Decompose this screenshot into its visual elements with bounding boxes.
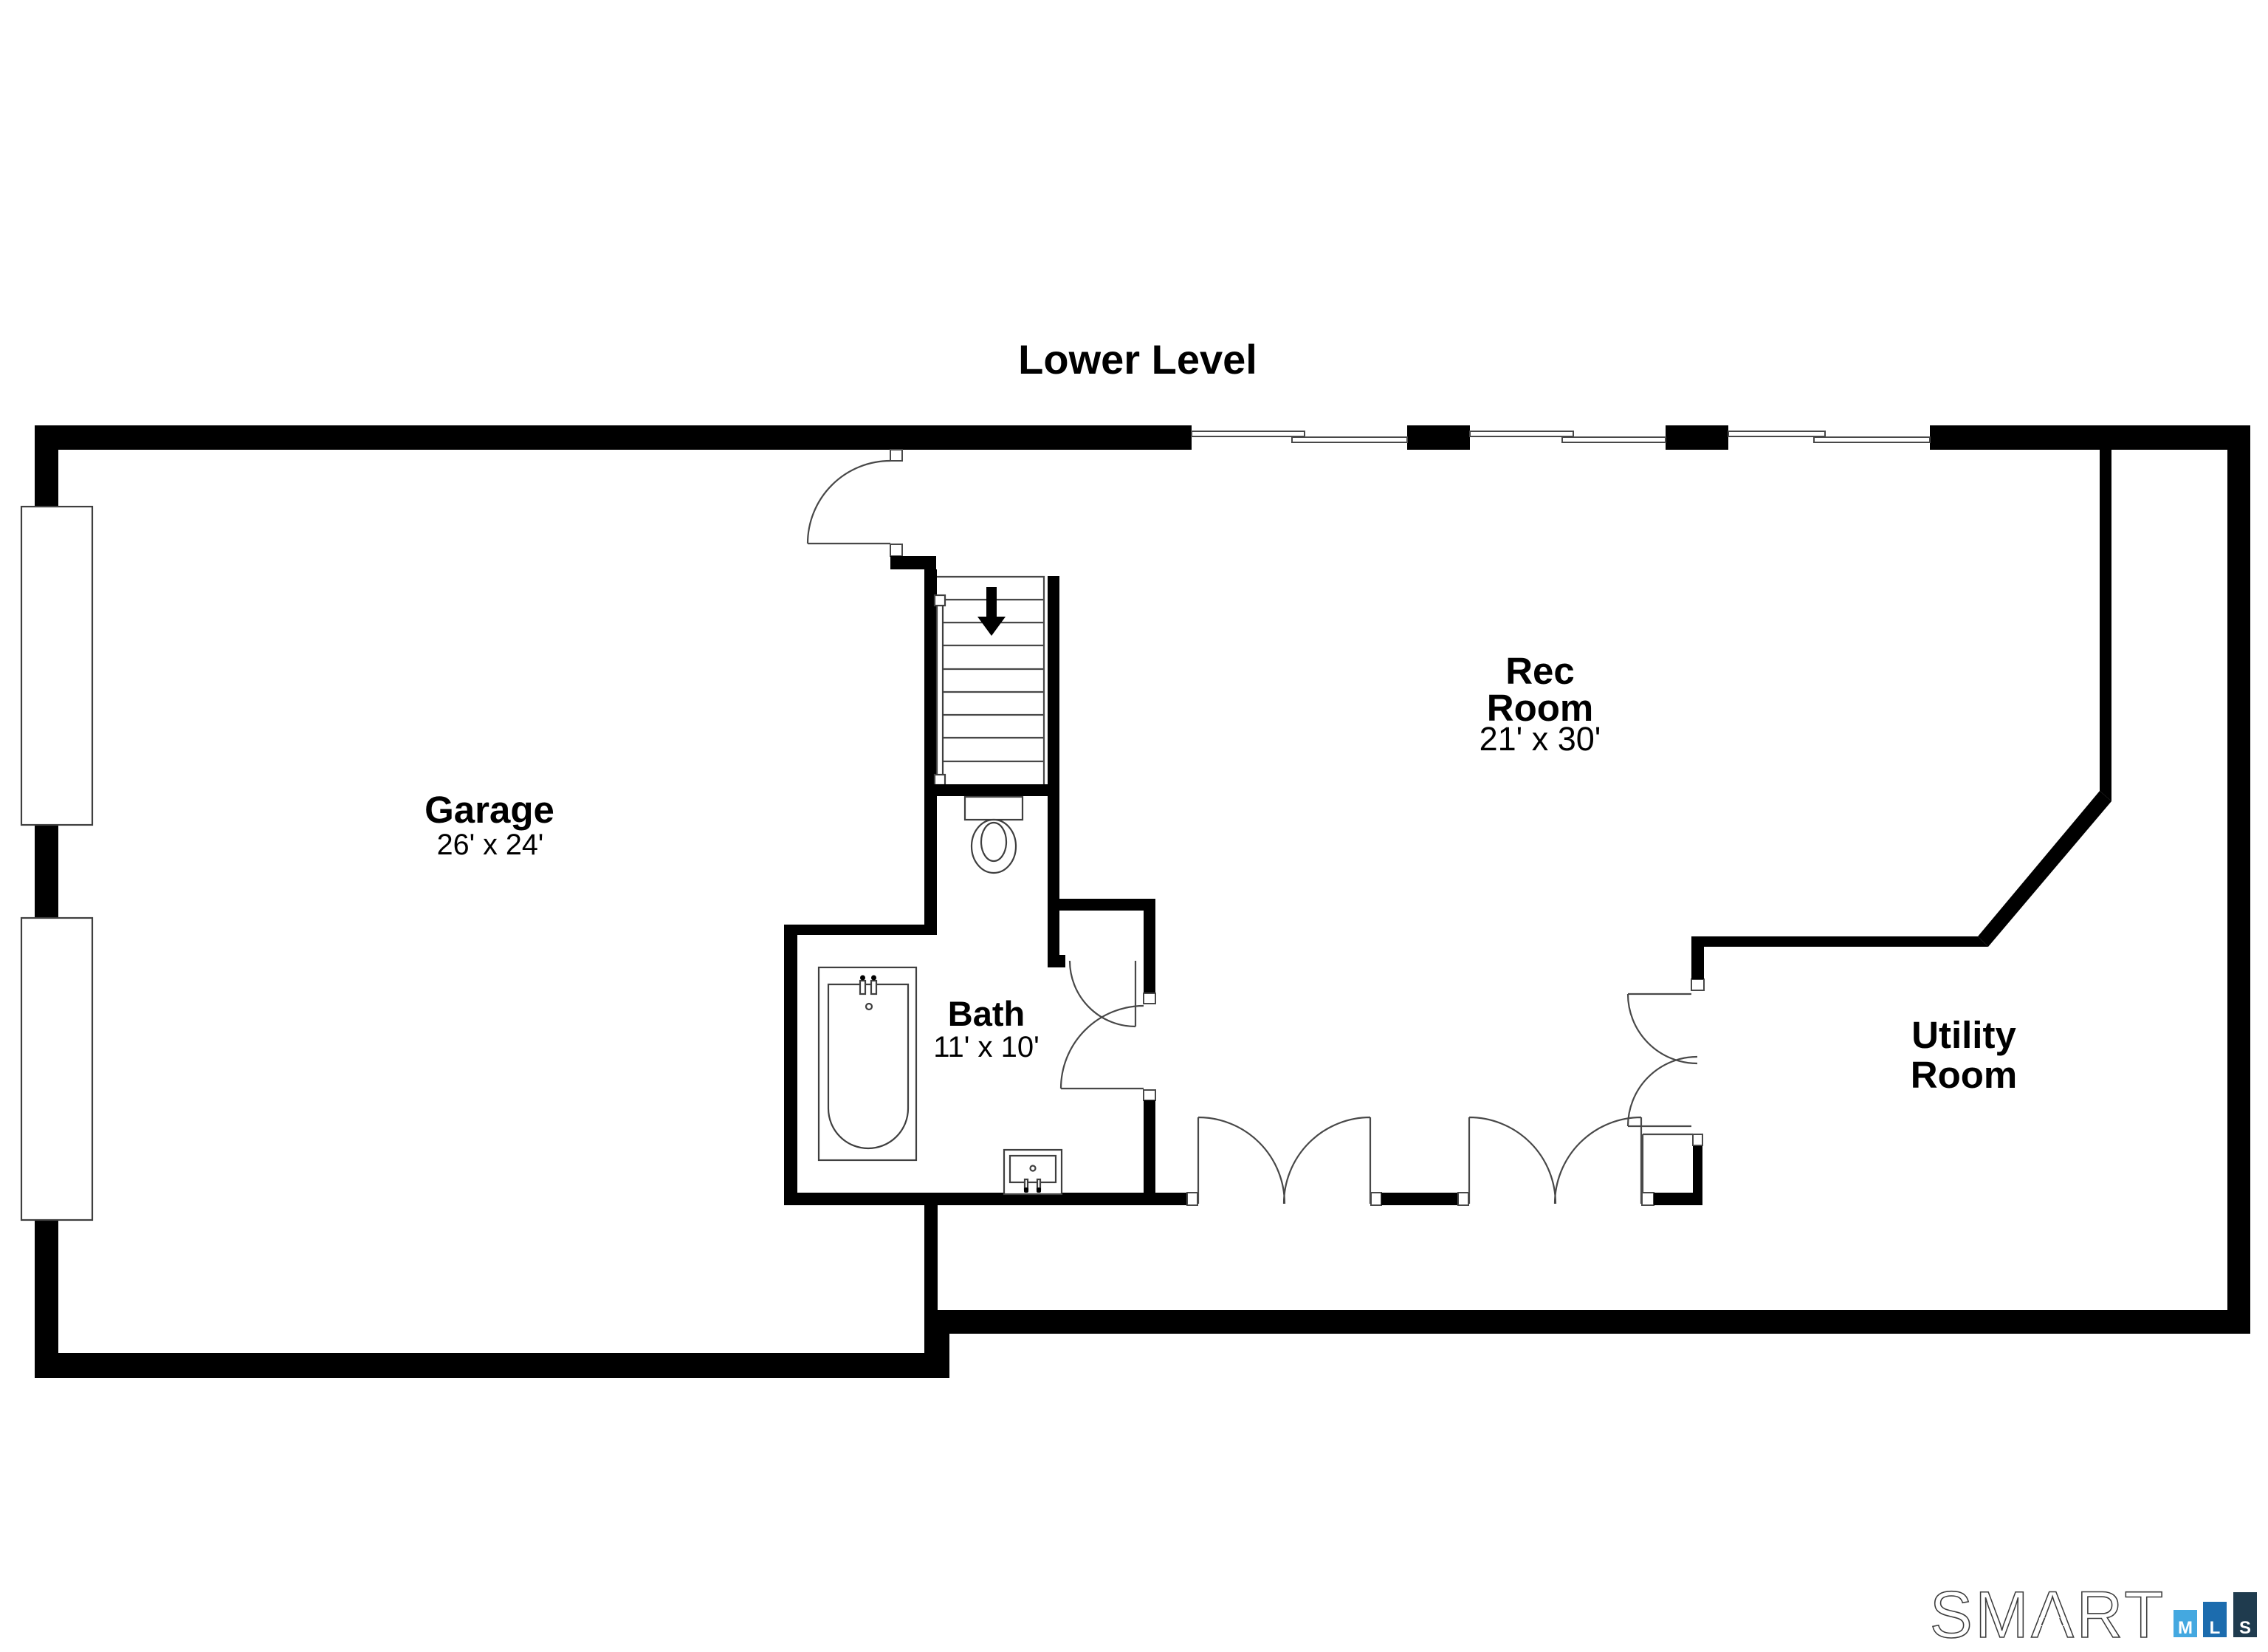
svg-text:Garage: Garage <box>425 789 554 831</box>
svg-text:Rec: Rec <box>1505 650 1575 692</box>
svg-text:Lower Level: Lower Level <box>1018 336 1257 383</box>
svg-text:L: L <box>2210 1618 2221 1638</box>
svg-text:Utility: Utility <box>1911 1014 2016 1056</box>
svg-text:S: S <box>2239 1618 2251 1638</box>
svg-text:11' x 10': 11' x 10' <box>933 1031 1039 1063</box>
svg-text:SMART: SMART <box>1930 1577 2166 1651</box>
svg-text:M: M <box>2178 1618 2193 1638</box>
svg-text:Room: Room <box>1911 1054 2017 1096</box>
svg-text:26' x 24': 26' x 24' <box>437 829 544 861</box>
svg-text:21' x 30': 21' x 30' <box>1480 720 1601 758</box>
svg-text:Bath: Bath <box>948 994 1025 1033</box>
